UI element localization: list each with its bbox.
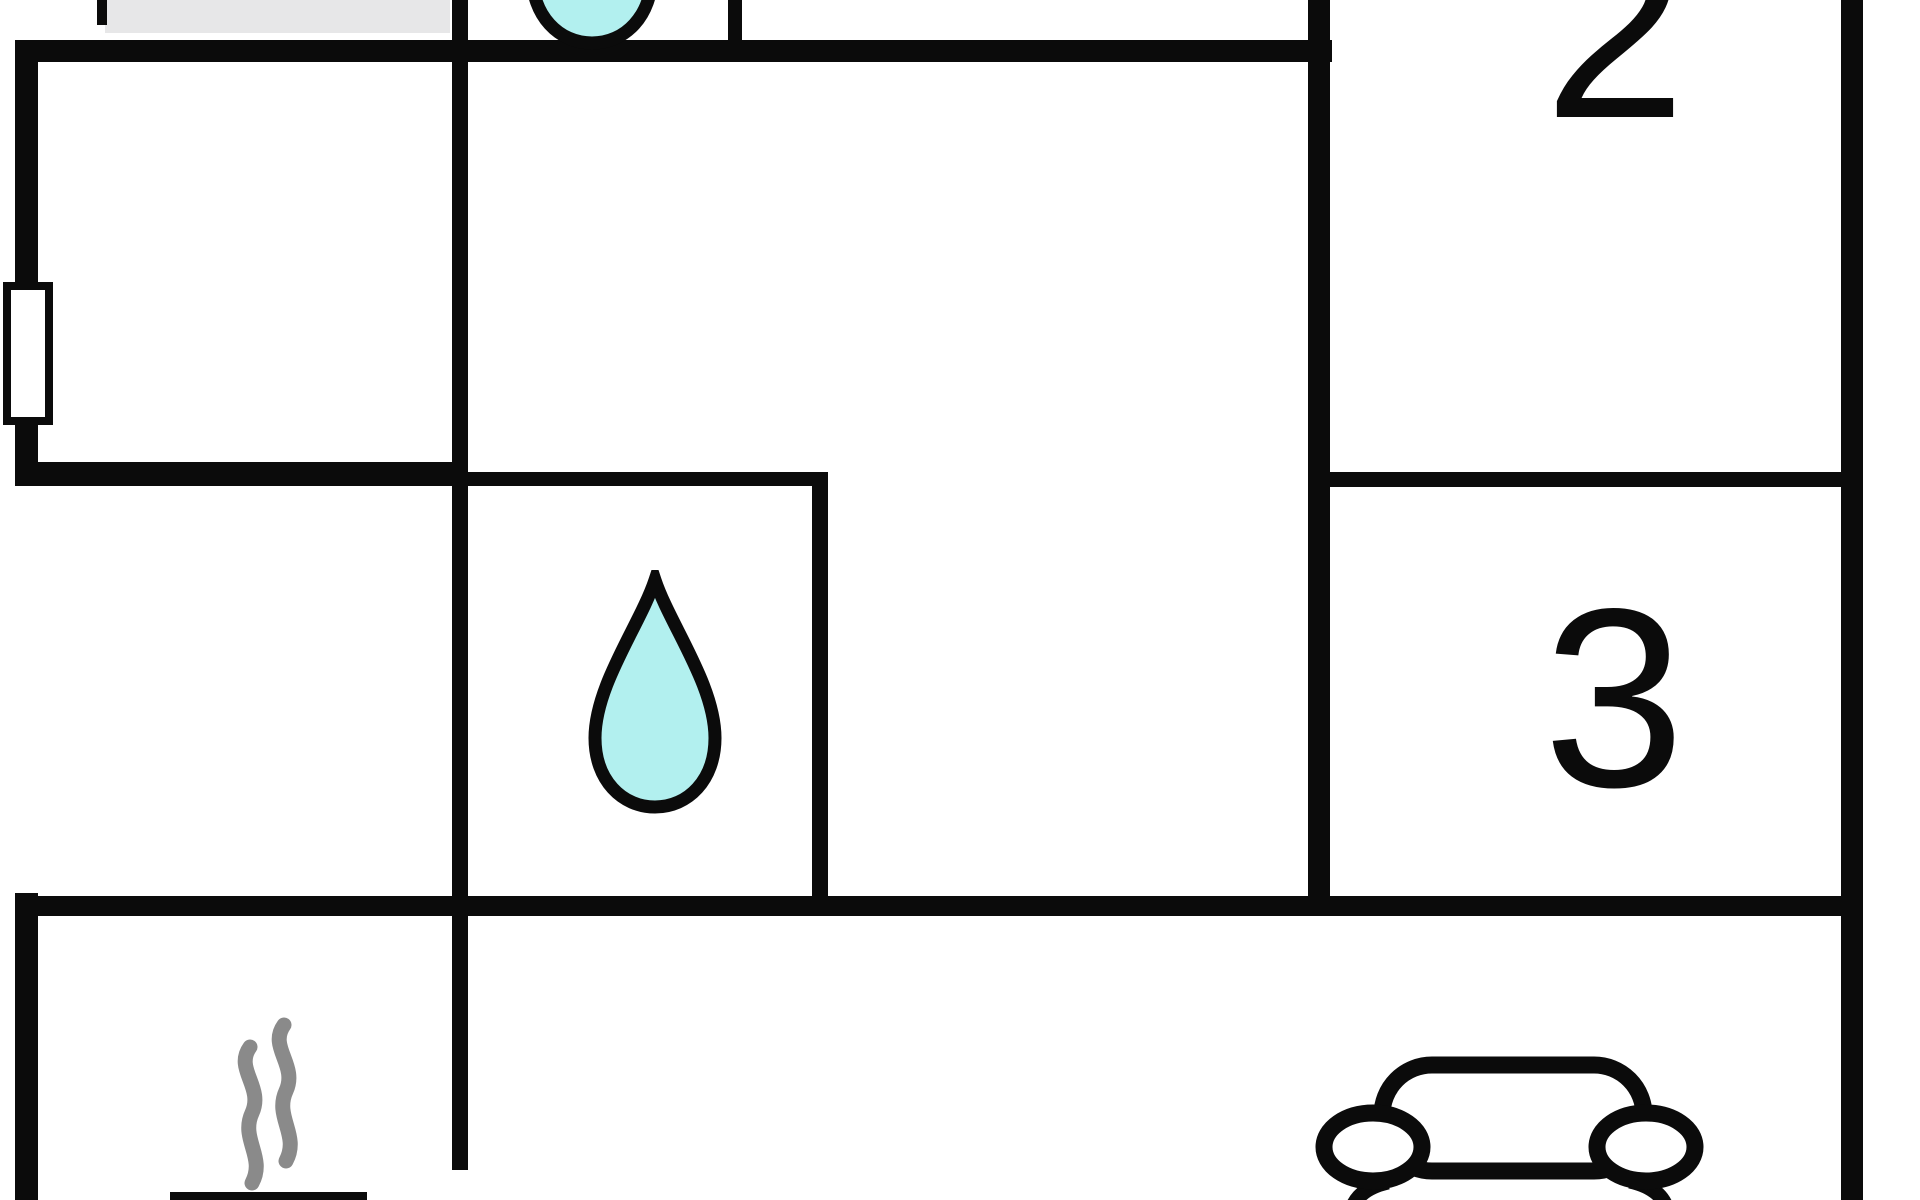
bench-bar — [170, 1192, 367, 1200]
floor-plan: 2 3 — [0, 0, 1920, 1200]
wall-room1-bottom — [15, 462, 468, 486]
wall-top-bathroom-right — [728, 0, 742, 58]
wall-bedrooms-left — [1308, 0, 1330, 916]
room2-label: 2 — [1544, 0, 1686, 157]
furniture-edge-wall — [97, 0, 107, 25]
room3-label: 3 — [1543, 571, 1685, 826]
wall-left-upper — [15, 40, 38, 286]
wall-vertical-center-left — [452, 0, 468, 1170]
wall-top — [15, 40, 1332, 62]
wall-bedroom-divider — [1330, 472, 1841, 487]
water-drop-icon — [517, 0, 667, 51]
gray-furniture-block — [105, 0, 450, 33]
wall-right-outer — [1841, 0, 1863, 1200]
wall-left-lower — [15, 893, 38, 1200]
wall-long-horizontal — [15, 896, 1863, 916]
car-icon — [1300, 1050, 1720, 1200]
wall-bathroom-right — [812, 472, 828, 915]
water-drop-icon — [580, 570, 730, 815]
steam-icon — [218, 1005, 328, 1200]
wall-bathroom-top — [452, 472, 828, 486]
window-marker — [3, 282, 53, 425]
